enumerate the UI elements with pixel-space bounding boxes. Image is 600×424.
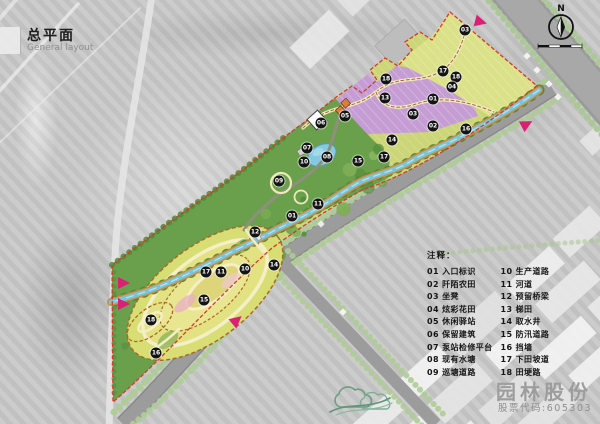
- legend-item-15: 15 防汛道路: [501, 329, 550, 342]
- legend-item-04: 04 炫彩花田: [427, 304, 493, 317]
- compass-icon: [536, 13, 586, 57]
- page-title: 总平面: [27, 25, 75, 45]
- brand-block: 园林股份 股票代码:605303: [392, 378, 592, 418]
- legend-item-08: 08 现有水塘: [427, 354, 493, 367]
- legend-item-13: 13 梯田: [501, 304, 550, 317]
- legend-item-17: 17 下田坡道: [501, 354, 550, 367]
- legend-col-2: 10 生产道路11 河道12 预留桥梁13 梯田14 取水井15 防汛道路16 …: [501, 266, 550, 379]
- entry-arrow-icon: [118, 298, 130, 310]
- entry-arrow-icon: [519, 116, 535, 132]
- legend-item-10: 10 生产道路: [501, 266, 550, 279]
- legend-item-05: 05 休闲驿站: [427, 316, 493, 329]
- entry-arrow-icon: [118, 277, 130, 289]
- slide: 0317181804130103050602161407081715100911…: [0, 0, 600, 424]
- legend-item-01: 01 入口标识: [427, 266, 493, 279]
- legend-item-03: 03 坐凳: [427, 291, 493, 304]
- legend-item-07: 07 泵站检修平台: [427, 342, 493, 355]
- north-arrow: N: [536, 4, 586, 52]
- legend: 注释： 01 入口标识02 阡陌农田03 坐凳04 炫彩花田05 休闲驿站06 …: [427, 249, 595, 379]
- legend-heading: 注释：: [427, 249, 595, 261]
- legend-item-12: 12 预留桥梁: [501, 291, 550, 304]
- scale-bar: [538, 44, 582, 50]
- entry-arrow-icon: [229, 312, 246, 329]
- legend-item-11: 11 河道: [501, 279, 550, 292]
- entry-arrow-icon: [474, 15, 489, 30]
- legend-col-1: 01 入口标识02 阡陌农田03 坐凳04 炫彩花田05 休闲驿站06 保留建筑…: [427, 266, 493, 379]
- legend-item-06: 06 保留建筑: [427, 329, 493, 342]
- cloud-logo-icon: [326, 374, 396, 418]
- legend-item-02: 02 阡陌农田: [427, 279, 493, 292]
- legend-item-16: 16 挡墙: [501, 342, 550, 355]
- brand-stock-code: 股票代码:605303: [498, 400, 592, 414]
- legend-item-14: 14 取水井: [501, 316, 550, 329]
- title-accent-bar: [0, 27, 21, 54]
- page-subtitle: General layout: [27, 43, 93, 53]
